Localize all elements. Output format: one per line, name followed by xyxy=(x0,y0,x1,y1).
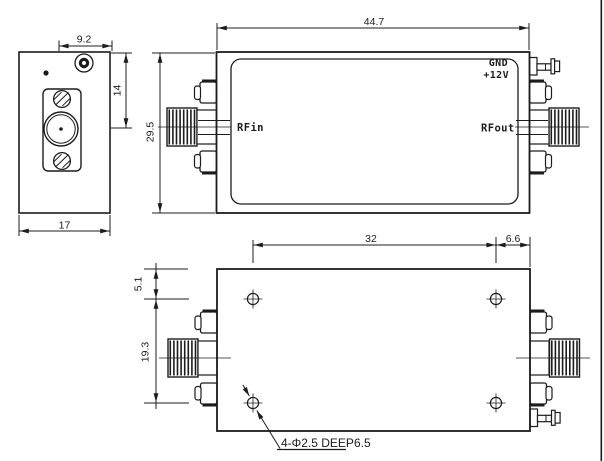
dim-14-label: 14 xyxy=(112,85,124,97)
end-view: 9.2 14 17 xyxy=(19,34,132,237)
led-dot-icon xyxy=(43,70,48,75)
dim-32-label: 32 xyxy=(365,233,377,245)
technical-drawing-canvas: 9.2 14 17 xyxy=(0,0,604,461)
power-label: +12V xyxy=(483,70,509,81)
dim-19-3-label: 19.3 xyxy=(140,342,152,363)
screw-icon xyxy=(54,153,71,170)
dim-17-label: 17 xyxy=(59,220,71,232)
screw-icon xyxy=(54,91,71,108)
dimension-9-2: 9.2 xyxy=(59,34,112,52)
mounting-hole-icon xyxy=(487,290,506,309)
dimension-17: 17 xyxy=(19,215,110,236)
sma-connector-icon xyxy=(516,310,590,407)
mounting-hole-icon xyxy=(487,394,506,413)
end-view-outline xyxy=(19,52,110,213)
technical-drawing-page: 9.2 14 17 xyxy=(0,0,604,461)
ground-label: GND xyxy=(489,58,508,69)
coax-connector-face-icon xyxy=(44,112,78,146)
sma-connector-icon xyxy=(158,80,231,175)
dimension-44-7: 44.7 xyxy=(217,16,529,50)
mounting-hole-note: 4-Φ2.5 DEEP6.5 xyxy=(281,436,371,450)
hole-note-leader: 4-Φ2.5 DEEP6.5 xyxy=(243,385,371,450)
sma-connector-icon xyxy=(515,80,589,175)
feedthrough-pin-icon xyxy=(530,409,560,427)
rf-input-label: RFin xyxy=(237,122,264,134)
dim-44-7-label: 44.7 xyxy=(364,16,385,28)
front-panel-inset xyxy=(231,59,518,204)
sma-connector-icon xyxy=(159,310,231,407)
rf-output-label: RFout xyxy=(481,123,515,135)
dimension-5-1-and-19-3: 5.1 19.3 xyxy=(133,263,190,409)
dim-5-1-label: 5.1 xyxy=(133,277,145,292)
bottom-view-outline xyxy=(217,269,530,431)
mounting-hole-icon xyxy=(244,290,263,309)
mounting-hole-icon xyxy=(244,394,263,413)
bottom-view: 32 6.6 5.1 19.3 4-Φ2.5 DEEP6.5 xyxy=(133,233,591,450)
dim-29-5-label: 29.5 xyxy=(145,122,157,143)
dimension-14: 14 xyxy=(111,53,132,128)
dim-6-6-label: 6.6 xyxy=(506,233,521,245)
feedthrough-pin-icon xyxy=(530,58,560,76)
front-view: RFin RFout GND +12V 44.7 29.5 xyxy=(145,16,590,213)
dim-9-2-label: 9.2 xyxy=(77,34,92,46)
feedthrough-terminal-icon xyxy=(75,54,93,72)
dimension-32-and-6-6: 32 6.6 xyxy=(253,233,530,267)
